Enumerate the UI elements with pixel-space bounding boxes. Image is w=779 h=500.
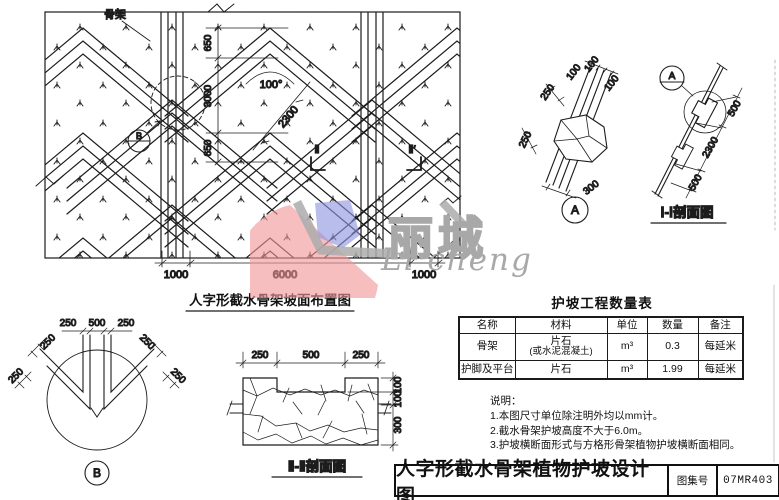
- col-name: 名称: [459, 317, 515, 333]
- atlas-label: 图集号: [669, 466, 718, 495]
- sheet-title: 人字形截水骨架植物护坡设计图: [396, 466, 669, 495]
- ii-dim-250a: 250: [252, 350, 269, 361]
- detail-b-drawing: 250 500 250 250 250 250 250 B: [6, 318, 187, 485]
- detail-b-mark: B: [93, 466, 101, 480]
- table-header-row: 名称 材料 单位 数量 备注: [459, 317, 743, 333]
- section-i-caption: Ⅰ-Ⅰ剖面图: [661, 204, 714, 220]
- dim-650b: 650: [203, 139, 214, 156]
- cell-name: 骨架: [459, 333, 515, 360]
- col-qty: 数量: [647, 317, 698, 333]
- dim-6000: 6000: [273, 269, 297, 281]
- cell-unit: m³: [607, 360, 647, 379]
- dim-1000a: 1000: [164, 269, 188, 281]
- col-unit: 单位: [607, 317, 647, 333]
- skeleton-label: 骨架: [104, 8, 126, 21]
- b-dim-l250a: 250: [38, 332, 58, 352]
- cell-material: 片石: [515, 360, 607, 379]
- notes-heading: 说明：: [490, 394, 776, 409]
- break-symbol-top: [208, 4, 234, 12]
- masonry-pattern: [243, 378, 378, 445]
- lower-block: [669, 141, 694, 169]
- cell-unit: m³: [607, 333, 647, 360]
- quantity-table: 名称 材料 单位 数量 备注 骨架 片石 (或水泥混凝土) m³ 0.3 每延米…: [458, 316, 744, 380]
- cell-qty: 1.99: [647, 360, 698, 379]
- cell-material: 片石 (或水泥混凝土): [515, 333, 607, 360]
- b-dim-250b: 250: [118, 318, 135, 329]
- section-i-detail-mark: A: [669, 71, 676, 82]
- b-dim-r250b: 250: [168, 366, 188, 386]
- notes-block: 说明： 1.本图尺寸单位除注明外均以mm计。 2.截水骨架护坡高度不大于6.0m…: [490, 394, 776, 453]
- title-block: 人字形截水骨架植物护坡设计图 图集号 07MR403: [394, 464, 779, 497]
- drawing-sheet: 骨架 650 3000 650 100° 2300 Ⅱ Ⅱ′ B: [0, 0, 779, 500]
- atlas-number: 07MR403: [718, 466, 778, 495]
- b-dim-500: 500: [89, 318, 106, 329]
- dim-500a: 500: [726, 98, 744, 118]
- ii-dim-100b: 100: [393, 390, 404, 407]
- ii-dim-250b: 250: [353, 350, 370, 361]
- b-dim-250a: 250: [60, 318, 77, 329]
- section-ii-outline: [243, 378, 378, 445]
- dim-100a: 100: [565, 62, 584, 82]
- dim-650a: 650: [203, 34, 214, 51]
- cell-qty: 0.3: [647, 333, 698, 360]
- cell-name: 护脚及平台: [459, 360, 515, 379]
- section-label-right: Ⅱ′: [408, 144, 415, 156]
- dim-100c: 100: [603, 73, 622, 93]
- dim-500b: 500: [687, 172, 705, 192]
- ii-dim-300: 300: [393, 416, 404, 433]
- section-ii-caption: Ⅱ-Ⅱ剖面图: [288, 458, 346, 474]
- table-row: 骨架 片石 (或水泥混凝土) m³ 0.3 每延米: [459, 333, 743, 360]
- ii-dim-500: 500: [303, 350, 320, 361]
- col-material: 材料: [515, 317, 607, 333]
- plan-drawing: 骨架 650 3000 650 100° 2300 Ⅱ Ⅱ′ B: [0, 4, 562, 339]
- section-label-left: Ⅱ: [314, 144, 319, 156]
- cell-remark: 每延米: [698, 333, 743, 360]
- dim-250a: 250: [539, 82, 558, 102]
- section-i-drawing: A 500 2300 500 Ⅰ-Ⅰ剖面图: [651, 60, 775, 230]
- detail-b-circle: [47, 350, 147, 450]
- dim-1000b: 1000: [412, 269, 436, 281]
- dim-300: 300: [581, 178, 601, 197]
- note-item: 1.本图尺寸单位除注明外均以mm计。: [490, 409, 776, 424]
- dim-2300b: 2300: [701, 135, 722, 160]
- cell-remark: 每延米: [698, 360, 743, 379]
- detail-flag-b-label: B: [136, 131, 142, 141]
- y-junction: [40, 335, 154, 409]
- b-dim-l250b: 250: [6, 366, 26, 386]
- note-item: 2.截水骨架护坡高度不大于6.0m。: [490, 424, 776, 439]
- material-line2: (或水泥混凝土): [517, 347, 606, 358]
- dim-100b: 100: [583, 54, 602, 74]
- section-ii-dims: [236, 352, 398, 451]
- table-row: 护脚及平台 片石 m³ 1.99 每延米: [459, 360, 743, 379]
- note-item: 3.护坡横断面形式与方格形骨架植物护坡横断面相同。: [490, 438, 776, 453]
- detail-a-mark: A: [571, 203, 579, 217]
- plan-caption: 人字形截水骨架坡面布置图: [189, 292, 351, 308]
- detail-b-dims: [15, 328, 179, 388]
- detail-a-drawing: 100 100 100 250 250 300 A: [517, 54, 622, 223]
- angle-label: 100°: [260, 79, 283, 91]
- quantity-table-title: 护坡工程数量表: [458, 292, 746, 312]
- col-remark: 备注: [698, 317, 743, 333]
